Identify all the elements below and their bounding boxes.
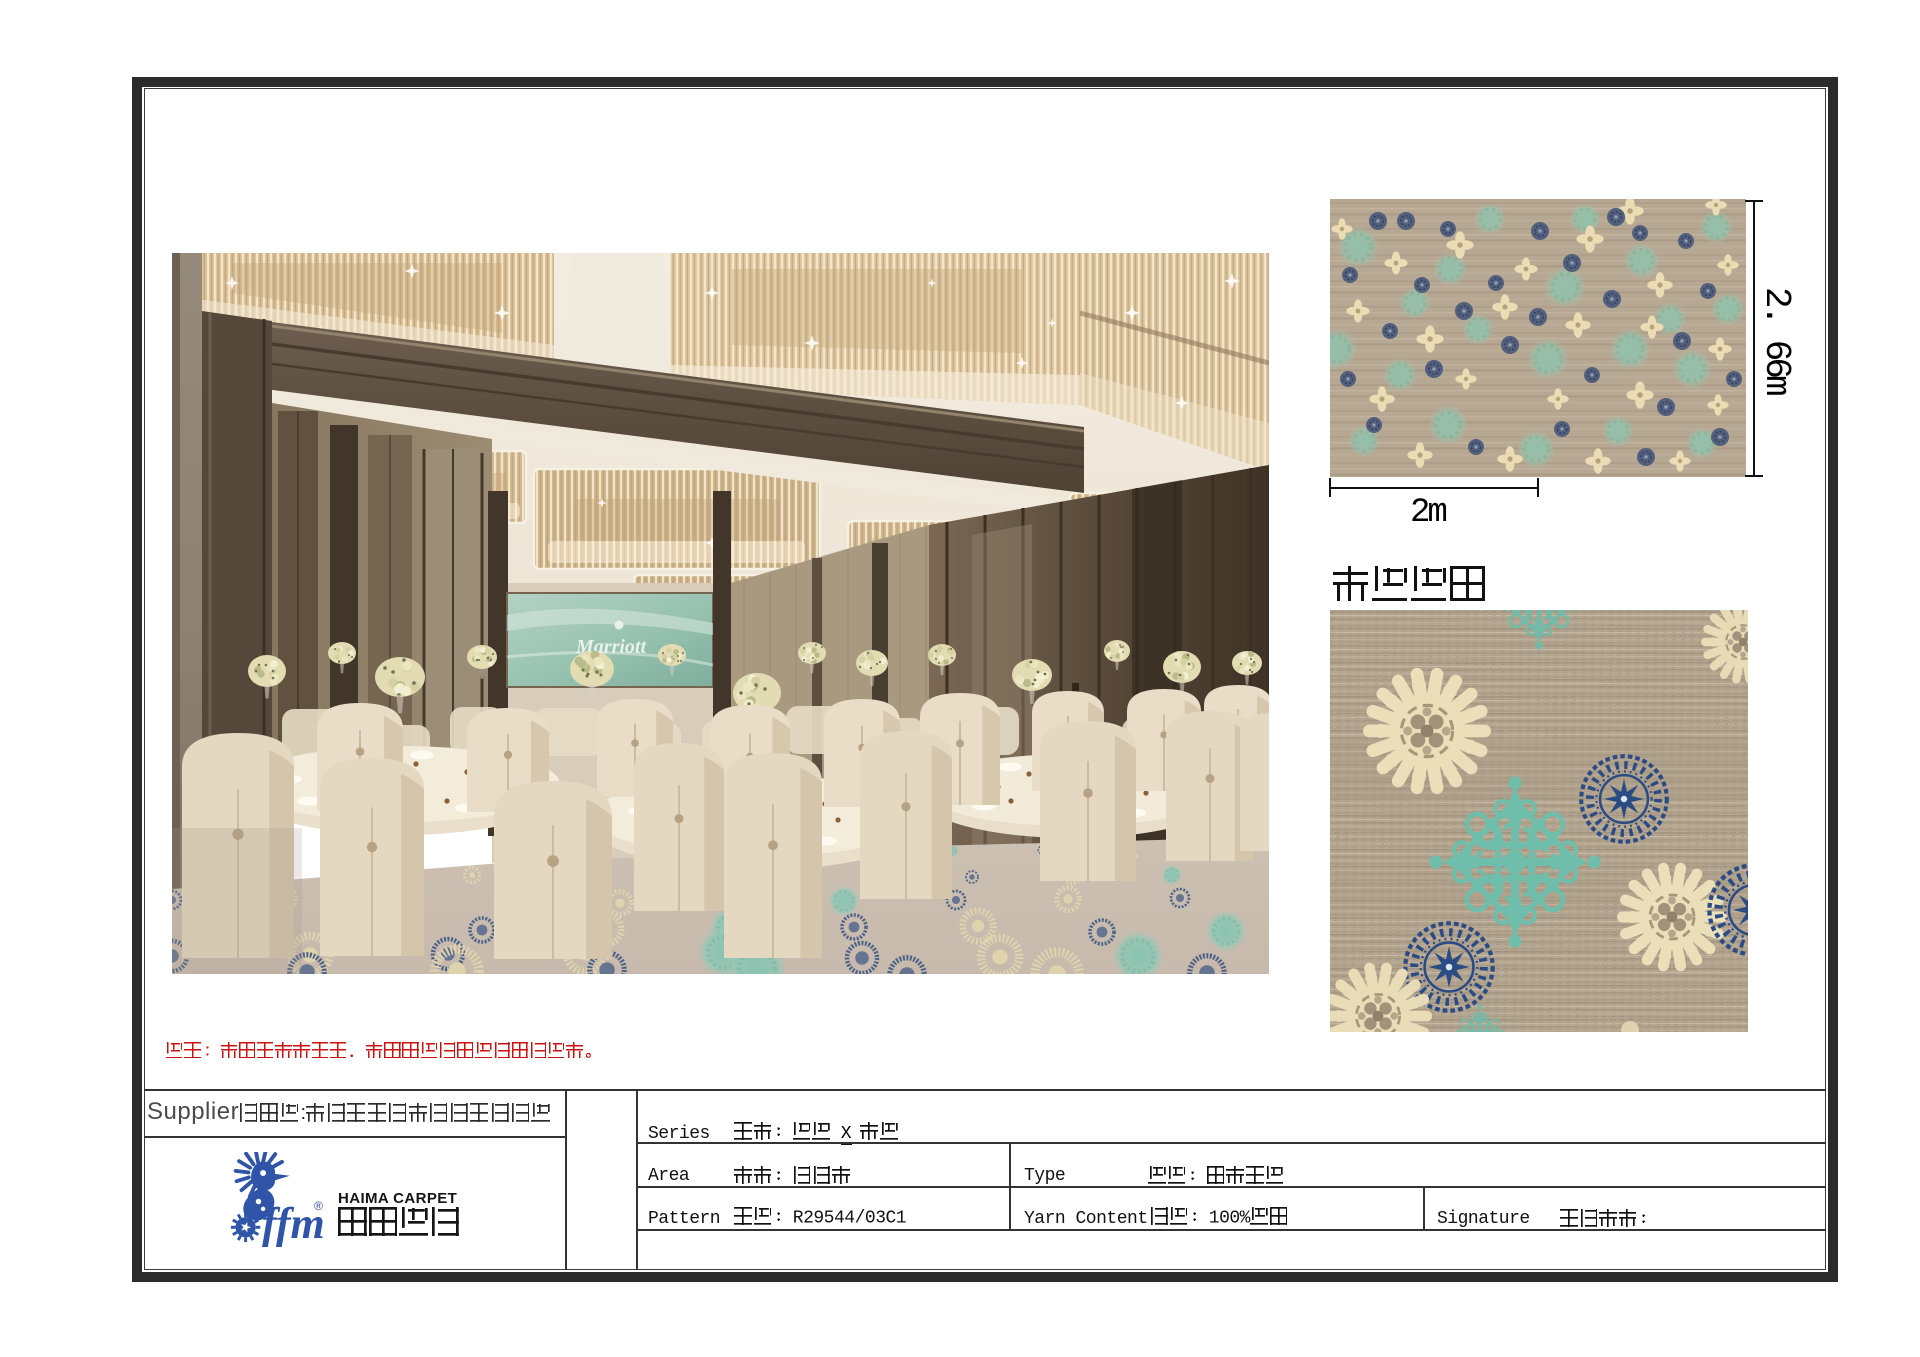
svg-text:®: ®: [314, 1199, 323, 1213]
